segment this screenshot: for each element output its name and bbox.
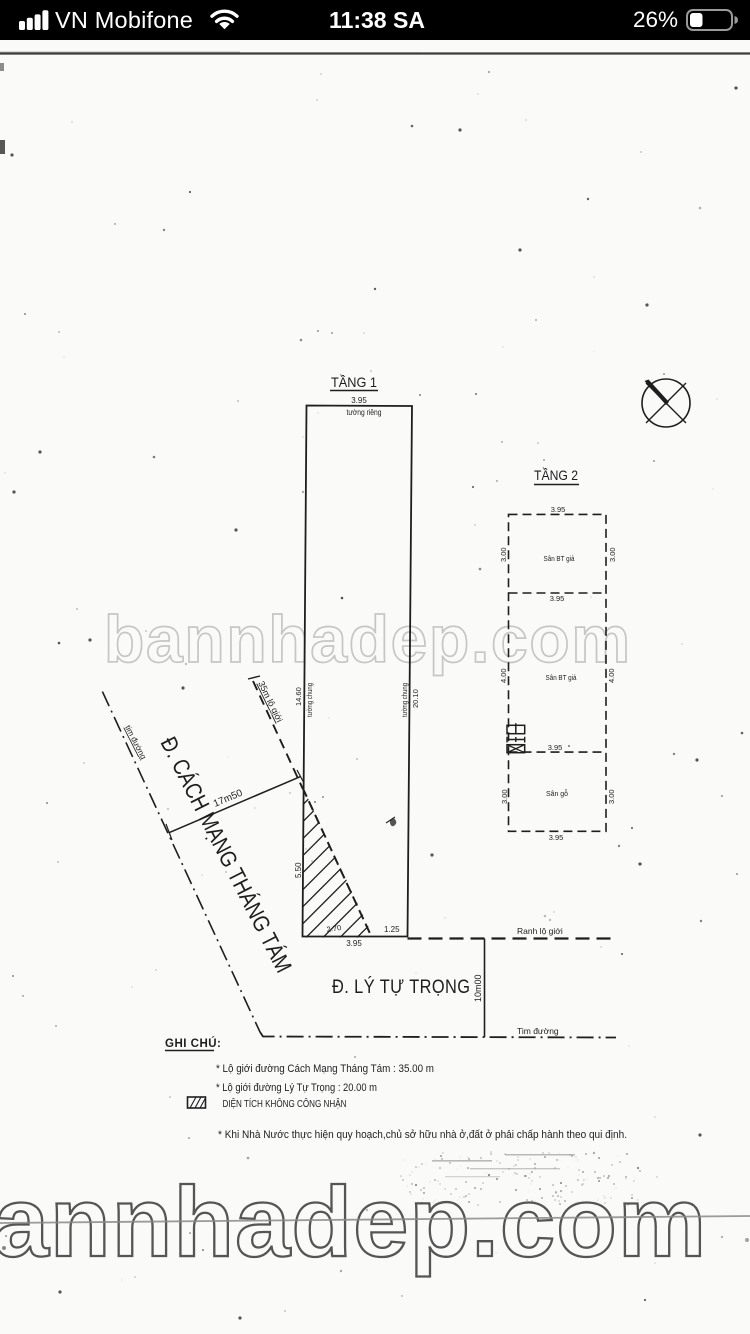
svg-text:4.00: 4.00 (499, 668, 508, 683)
svg-text:1.25: 1.25 (384, 925, 400, 934)
svg-text:bannhadep.com: bannhadep.com (104, 602, 631, 676)
svg-text:* Lộ giới đường Cách Mạng Thán: * Lộ giới đường Cách Mạng Tháng Tám : 35… (216, 1063, 434, 1075)
svg-text:10m00: 10m00 (473, 974, 483, 1002)
svg-text:tường chung: tường chung (305, 683, 314, 717)
svg-text:3.00: 3.00 (500, 789, 509, 804)
svg-text:TẦNG 1: TẦNG 1 (331, 374, 377, 390)
svg-text:Đ. LÝ TỰ TRỌNG: Đ. LÝ TỰ TRỌNG (332, 976, 470, 998)
svg-text:tim đường: tim đường (123, 724, 148, 761)
svg-text:tường riêng: tường riêng (347, 408, 382, 417)
svg-text:Sân BT giả: Sân BT giả (546, 673, 578, 682)
svg-text:* Lộ giới đường Lý Tự Trọng :: * Lộ giới đường Lý Tự Trọng : 20.00 m (216, 1082, 377, 1094)
svg-text:tường chung: tường chung (400, 683, 409, 717)
svg-text:2.70: 2.70 (326, 923, 342, 934)
svg-text:4.00: 4.00 (607, 668, 616, 683)
svg-text:3.95: 3.95 (550, 594, 565, 603)
svg-text:* Khi Nhà Nước thực hiện quy h: * Khi Nhà Nước thực hiện quy hoạch,chủ s… (218, 1129, 627, 1141)
svg-text:3.00: 3.00 (608, 547, 617, 562)
svg-text:Sân gỗ: Sân gỗ (546, 789, 568, 798)
svg-text:3.95: 3.95 (549, 833, 564, 842)
svg-text:20.10: 20.10 (411, 689, 420, 708)
svg-text:DIỆN TÍCH KHÔNG CÔNG NHẬN: DIỆN TÍCH KHÔNG CÔNG NHẬN (223, 1097, 347, 1110)
svg-text:Sân BT giả: Sân BT giả (544, 554, 576, 563)
svg-text:14.60: 14.60 (294, 687, 303, 706)
svg-text:Đ. CÁCH MẠNG THÁNG TÁM: Đ. CÁCH MẠNG THÁNG TÁM (155, 732, 298, 977)
svg-text:GHI CHÚ:: GHI CHÚ: (165, 1037, 221, 1050)
svg-text:5.50: 5.50 (294, 862, 303, 878)
svg-text:3.95: 3.95 (346, 939, 362, 948)
svg-text:3.95: 3.95 (351, 396, 367, 405)
svg-text:TẦNG 2: TẦNG 2 (534, 467, 578, 483)
svg-text:3.00: 3.00 (499, 547, 508, 562)
svg-text:Ranh lộ giới: Ranh lộ giới (517, 926, 563, 936)
svg-text:17m50: 17m50 (212, 788, 245, 810)
svg-text:3.00: 3.00 (607, 789, 616, 804)
svg-text:Tim đường: Tim đường (517, 1026, 559, 1036)
svg-text:3.95: 3.95 (548, 743, 563, 752)
svg-text:3.95: 3.95 (551, 505, 566, 514)
